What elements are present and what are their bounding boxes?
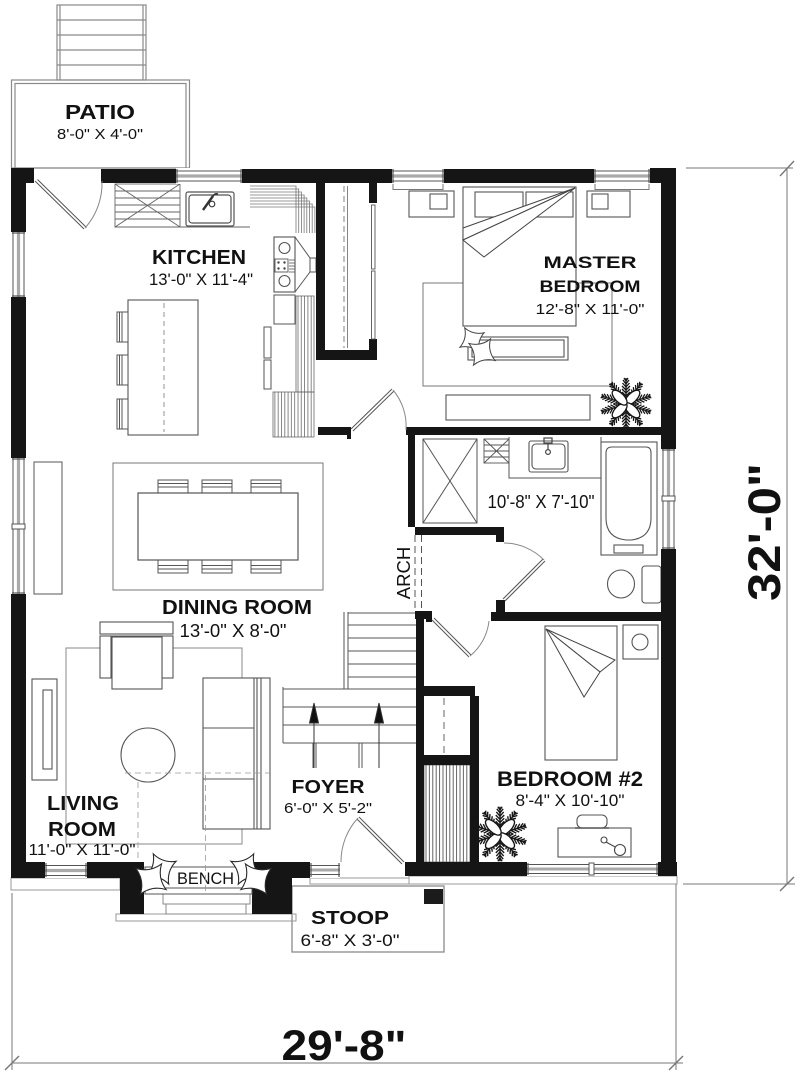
svg-text:13'-0" X 8'-0": 13'-0" X 8'-0" bbox=[180, 620, 287, 641]
svg-text:11'-0" X 11'-0": 11'-0" X 11'-0" bbox=[29, 842, 136, 859]
svg-text:13'-0" X 11'-4": 13'-0" X 11'-4" bbox=[149, 270, 253, 289]
svg-text:8'-0" X 4'-0": 8'-0" X 4'-0" bbox=[57, 127, 143, 143]
svg-text:STOOP: STOOP bbox=[311, 908, 389, 928]
svg-text:6'-8" X 3'-0": 6'-8" X 3'-0" bbox=[301, 931, 400, 950]
svg-text:6'-0" X 5'-2": 6'-0" X 5'-2" bbox=[284, 800, 372, 817]
svg-text:PATIO: PATIO bbox=[65, 101, 135, 124]
svg-text:32'-0": 32'-0" bbox=[739, 463, 790, 601]
svg-text:BEDROOM: BEDROOM bbox=[540, 277, 641, 296]
svg-text:LIVING: LIVING bbox=[47, 792, 119, 815]
svg-text:12'-8" X 11'-0": 12'-8" X 11'-0" bbox=[536, 301, 645, 318]
svg-text:10'-8" X 7'-10": 10'-8" X 7'-10" bbox=[488, 492, 595, 512]
svg-text:8'-4" X 10'-10": 8'-4" X 10'-10" bbox=[516, 791, 625, 810]
svg-text:BEDROOM #2: BEDROOM #2 bbox=[497, 768, 643, 791]
svg-text:ARCH: ARCH bbox=[393, 547, 414, 599]
svg-text:ROOM: ROOM bbox=[48, 818, 116, 841]
svg-text:29'-8": 29'-8" bbox=[282, 1022, 407, 1070]
svg-text:DINING ROOM: DINING ROOM bbox=[162, 596, 312, 619]
svg-text:FOYER: FOYER bbox=[292, 776, 365, 797]
svg-text:KITCHEN: KITCHEN bbox=[152, 246, 246, 269]
svg-text:MASTER: MASTER bbox=[544, 253, 637, 272]
